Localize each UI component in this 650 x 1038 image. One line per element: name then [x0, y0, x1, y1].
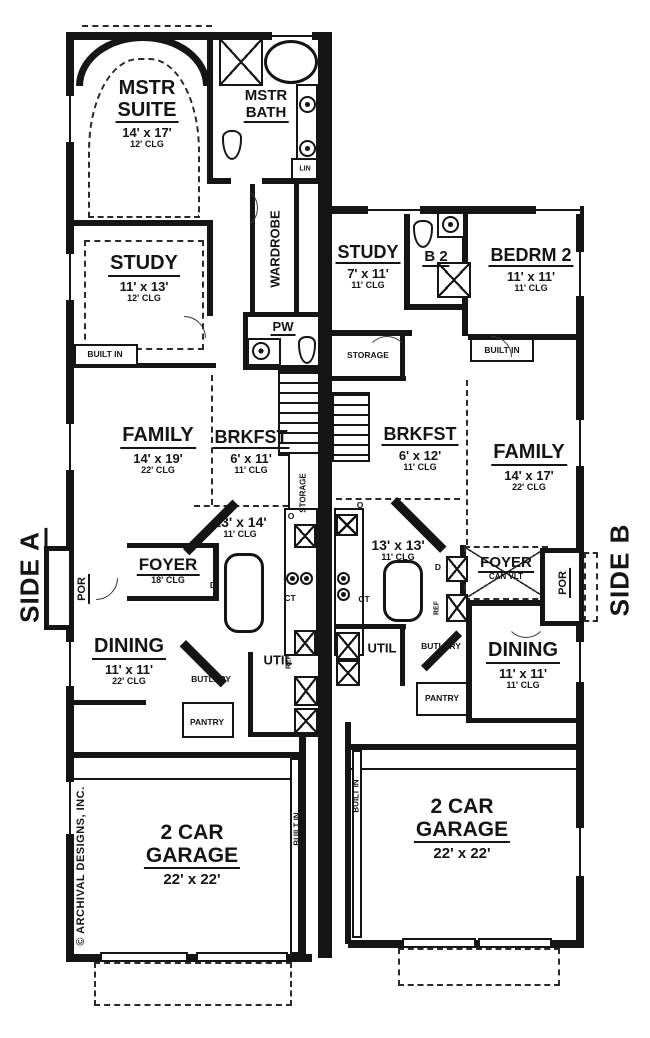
toilet [413, 220, 433, 248]
porch-label-b: POR [557, 568, 569, 598]
side-b-label: SIDE B [605, 524, 636, 617]
room-label-garage-b: 2 CAR GARAGE 22' x 22' [414, 796, 510, 863]
dishwasher [446, 556, 468, 582]
kitchen-island [224, 553, 264, 633]
room-label-bedrm2: BEDRM 2 11' x 11' 11' CLG [488, 246, 573, 294]
refrigerator [294, 630, 316, 656]
window [576, 828, 584, 876]
side-a-label: SIDE A [15, 528, 46, 626]
room-label-foyer-b: FOYER CAN VLT [478, 554, 534, 582]
room-label-dining-a: DINING 11' x 11' 22' CLG [92, 636, 166, 686]
washer [294, 676, 318, 706]
room-label-pw: PW [271, 318, 296, 336]
room-label-study-a: STUDY 11' x 13' 12' CLG [108, 253, 180, 303]
cooktop-label-b: CT [358, 594, 369, 604]
pantry-label-a: PANTRY [190, 717, 224, 727]
room-label-brkfst-a: BRKFST 6' x 11' 11' CLG [213, 428, 290, 476]
room-label-garage-a: 2 CAR GARAGE 22' x 22' [144, 822, 240, 889]
built-in-label-garage-a: BUILT IN [293, 812, 302, 845]
room-label-dining-b: DINING 11' x 11' 11' CLG [486, 640, 560, 690]
sink [252, 342, 270, 360]
wall [213, 178, 231, 184]
oven [336, 514, 358, 536]
lin-label: LIN [299, 166, 310, 173]
wall [410, 304, 468, 310]
roof-dashed-line [82, 25, 212, 27]
toilet [298, 336, 316, 364]
shower [219, 38, 263, 86]
tub [264, 40, 318, 84]
wall [294, 184, 299, 316]
garage-door [100, 952, 188, 962]
butlery-label-a: BUTLERY [191, 674, 231, 684]
built-in-cabinet [290, 758, 300, 954]
door-arc [65, 547, 127, 609]
wall [400, 624, 405, 686]
window [66, 254, 74, 300]
wall [127, 543, 215, 548]
built-in-label-b: BUILT IN [484, 345, 519, 355]
oven-label-b: O [357, 500, 364, 510]
room-label-kitchen-b: 13' x 13' 11' CLG [371, 538, 424, 563]
wall [248, 652, 253, 737]
oven-label-a: O [288, 511, 295, 521]
room-label-mstr-suite: MSTR SUITE 14' x 17' 12' CLG [116, 78, 179, 150]
wall [348, 744, 580, 750]
wall [74, 778, 300, 780]
copyright: © ARCHIVAL DESIGNS, INC. [75, 786, 87, 945]
party-wall [318, 32, 332, 958]
built-in-label: BUILT IN [87, 349, 122, 359]
dryer [294, 708, 318, 734]
storage-label-b: STORAGE [347, 350, 389, 360]
cooktop-burner [337, 588, 350, 601]
ref-label-b: REF [434, 601, 441, 615]
wall [243, 312, 322, 317]
pantry-label-b: PANTRY [425, 693, 459, 703]
butlery-label-b: BUTLERY [421, 641, 461, 651]
door-arc [505, 596, 547, 638]
shower [437, 262, 471, 298]
wall [213, 543, 219, 601]
sink [299, 96, 316, 113]
toilet [222, 130, 242, 160]
window [576, 252, 584, 296]
sink [442, 216, 459, 233]
kitchen-island [383, 560, 423, 622]
built-in-label-garage-b: BUILT IN [352, 779, 361, 812]
room-label-b2: B 2 [422, 248, 449, 267]
driveway-apron [398, 948, 560, 986]
dishwasher-label-a: D [210, 580, 216, 590]
wall [207, 220, 213, 316]
wardrobe-label: WARDROBE [268, 210, 283, 287]
refrigerator [446, 594, 468, 622]
window [576, 642, 584, 682]
wall [207, 32, 213, 184]
cooktop-label-a: CT [284, 593, 295, 603]
room-label-foyer-a: FOYER 18' CLG [137, 556, 200, 586]
wall [404, 212, 410, 310]
wall [66, 752, 306, 758]
wall [66, 700, 146, 705]
window [272, 32, 312, 40]
cooktop-burner [286, 572, 299, 585]
window [576, 420, 584, 466]
porch-outline [584, 552, 598, 622]
sink [299, 140, 316, 157]
dishwasher-label-b: D [435, 562, 441, 572]
stairs [332, 392, 370, 462]
room-label-brkfst-b: BRKFST 6' x 12' 11' CLG [382, 425, 459, 473]
door-arc [214, 186, 258, 230]
ceiling-break-line [466, 380, 468, 545]
wall [351, 768, 577, 770]
wall [326, 336, 331, 380]
porch-label-a: POR [76, 574, 88, 604]
wall [466, 718, 580, 723]
room-label-kitchen-a: 13' x 14' 11' CLG [213, 515, 266, 540]
window [66, 424, 74, 470]
wall [127, 596, 215, 601]
room-label-family-a: FAMILY 14' x 19' 22' CLG [120, 425, 196, 475]
driveway-apron [94, 962, 292, 1006]
garage-door [402, 938, 476, 948]
storage-label-a: STORAGE [299, 473, 308, 512]
wall [345, 722, 351, 944]
window [66, 96, 74, 142]
room-label-family-b: FAMILY 14' x 17' 22' CLG [491, 442, 567, 492]
washer [336, 632, 360, 660]
window [368, 206, 420, 214]
util-label-a: UTIL [264, 653, 293, 668]
cooktop-burner [337, 572, 350, 585]
garage-door [478, 938, 552, 948]
built-in-cabinet [352, 750, 362, 938]
porch [44, 546, 74, 630]
room-label-study-b: STUDY 7' x 11' 11' CLG [335, 243, 400, 291]
oven [294, 524, 316, 548]
room-label-mstr-bath: MSTR BATH [244, 88, 289, 123]
window [536, 206, 580, 214]
garage-door [196, 952, 288, 962]
floor-plan: SIDE A MSTR SUITE 14' x 17' 12' CLG MSTR… [0, 0, 650, 1038]
cooktop-burner [300, 572, 313, 585]
wall [334, 624, 406, 629]
dryer [336, 660, 360, 686]
util-label-b: UTIL [368, 641, 397, 656]
wall [66, 220, 213, 226]
window [66, 642, 74, 686]
window [66, 782, 74, 834]
